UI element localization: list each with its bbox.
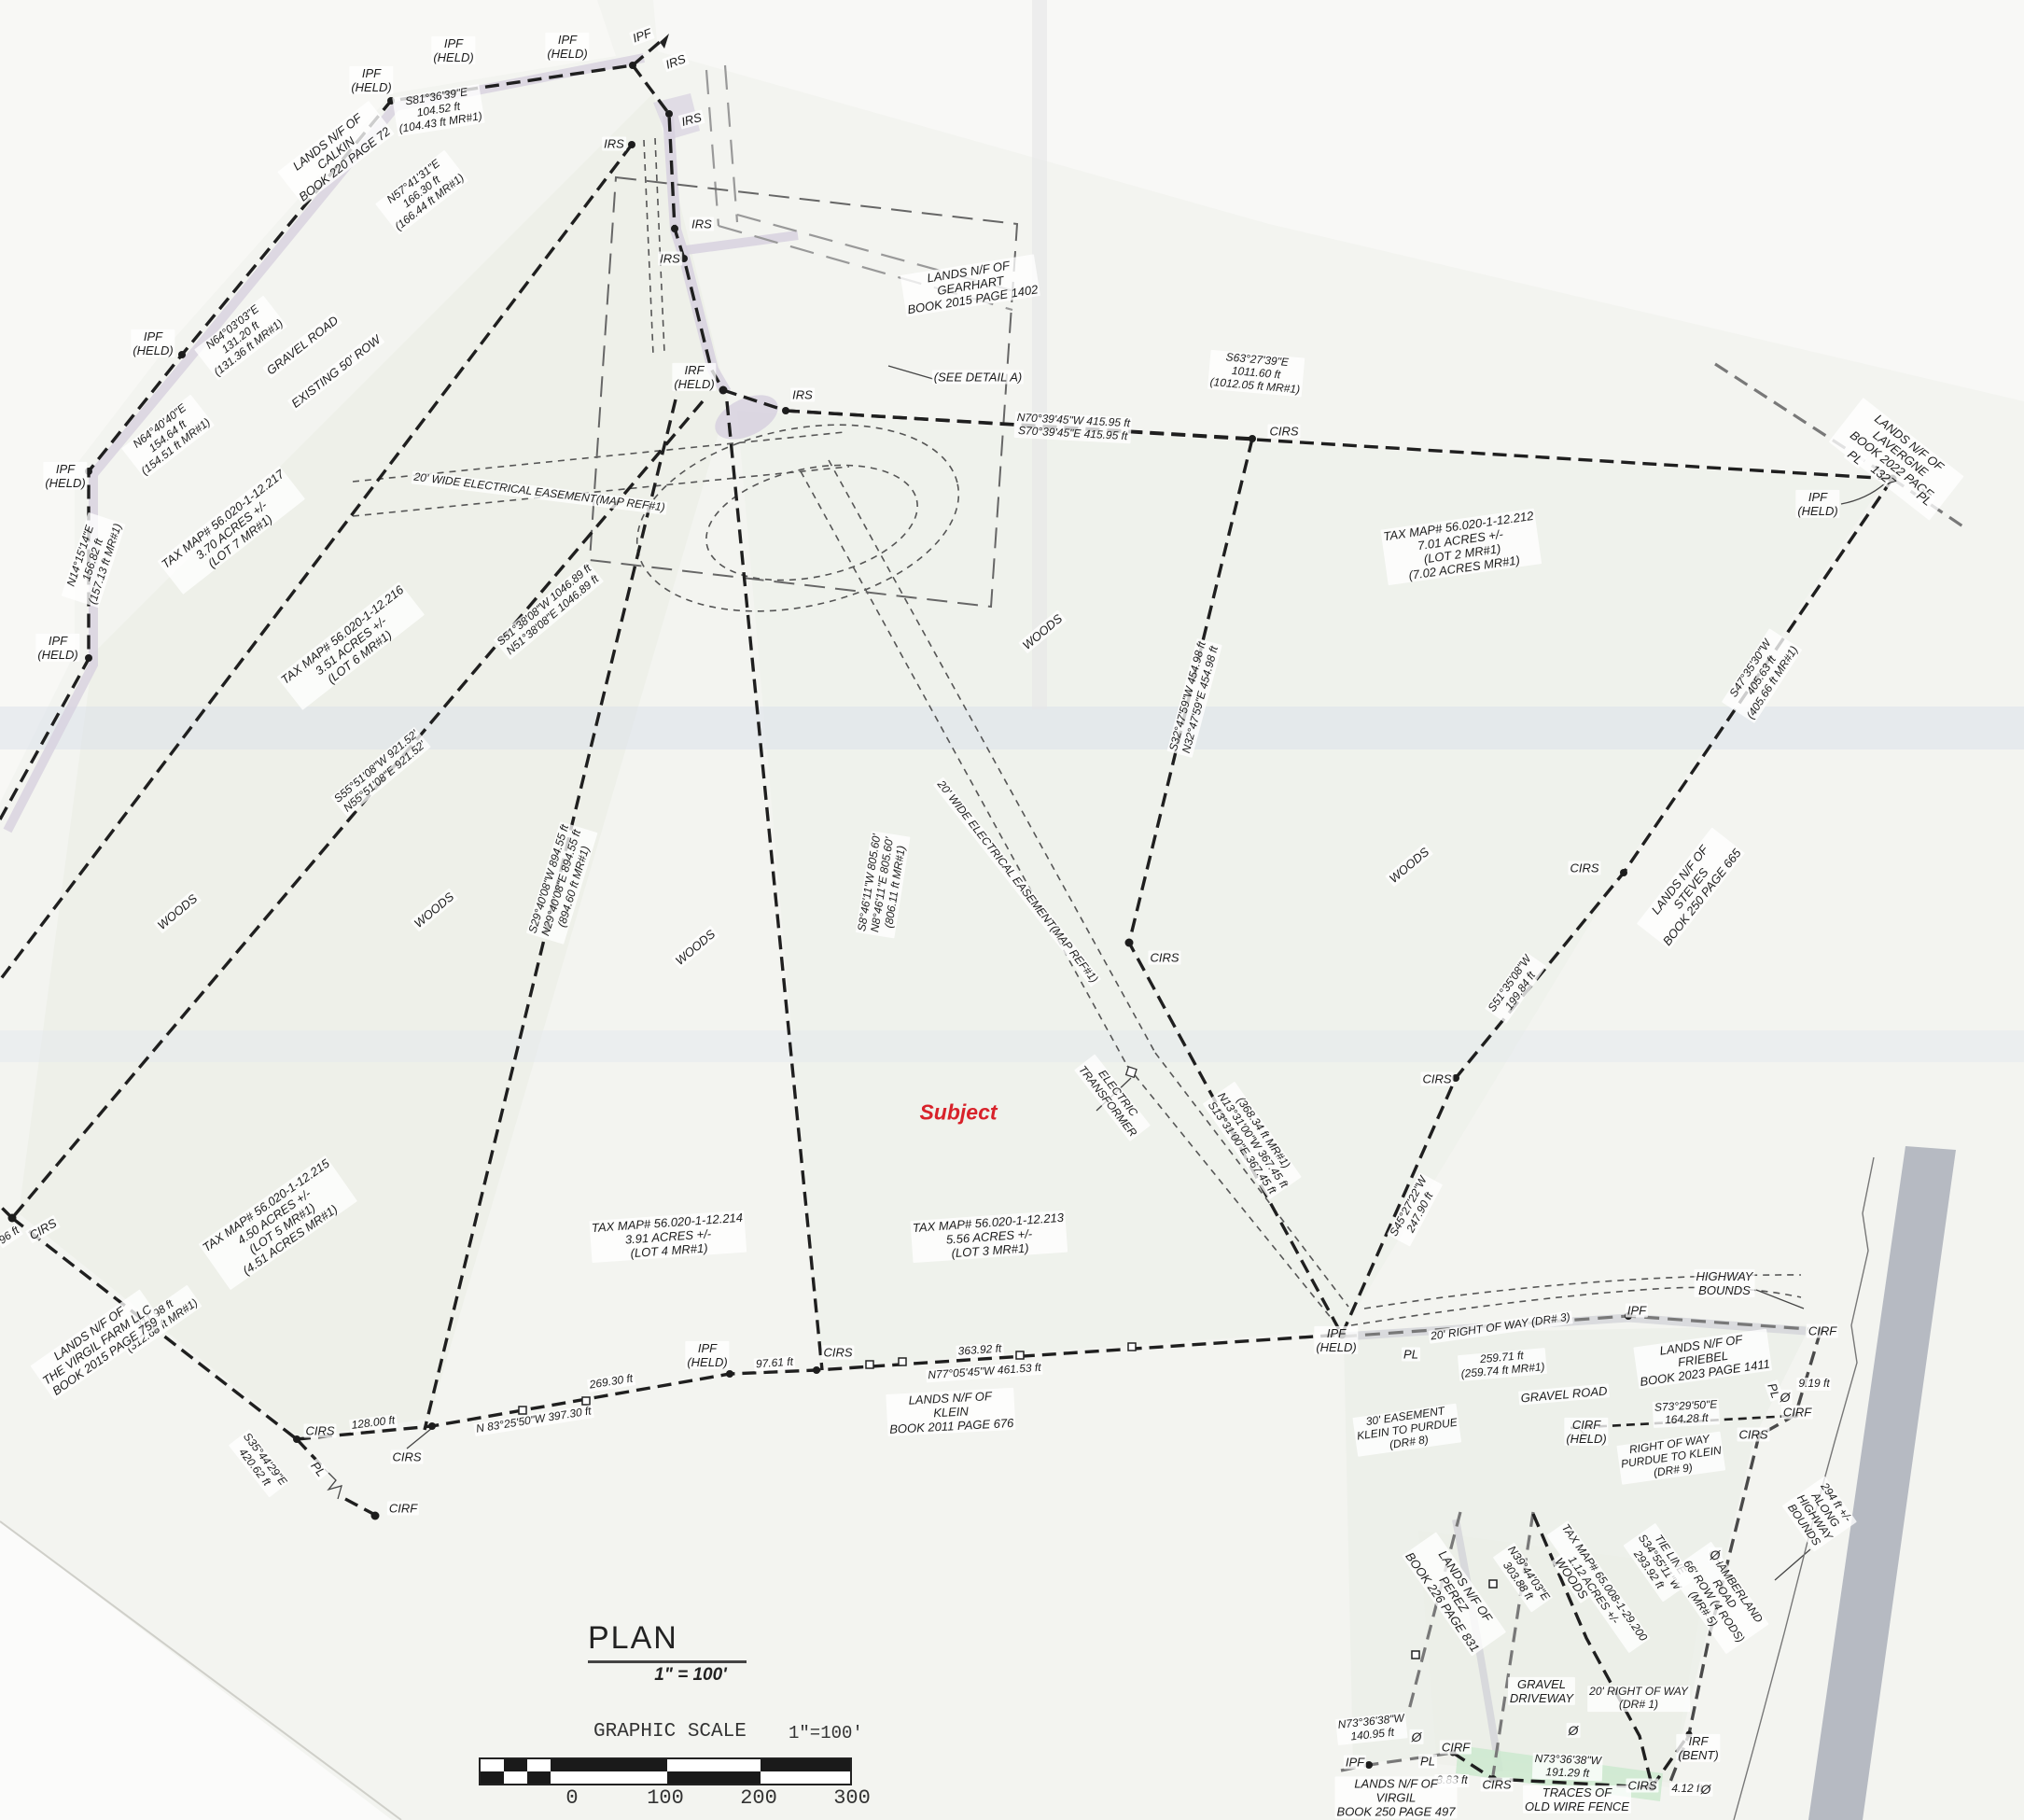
label-294-highway: 294 ft +/- ALONG HIGHWAY BOUNDS (1782, 1476, 1857, 1551)
pole-icon-2: Ø (1567, 1723, 1581, 1738)
label-ipf-held-a: IPF (HELD) (431, 36, 475, 64)
label-lands-calkin: LANDS N/F OF CALKIN BOOK 220 PAGE 72 (277, 101, 394, 205)
annotation-layer: IPF (HELD)IPFIRSIRSIRSIRSIRSIRF (HELD)IR… (0, 0, 2024, 1820)
label-pl-6: PL (1418, 1754, 1437, 1768)
label-bearing-s32: S32°47'59"W 454.98 ft N32°47'59"E 454.98… (1166, 638, 1221, 758)
label-ipf-top: IPF (629, 25, 655, 46)
pole-icon-3: Ø (1709, 1547, 1723, 1562)
label-taxmap-lot5: TAX MAP# 56.020-1-12.215 4.50 ACRES +/- … (199, 1155, 358, 1291)
label-ipf-held-top-center: IPF (HELD) (545, 33, 589, 61)
label-lands-friebel: LANDS N/F OF FRIEBEL BOOK 2023 PAGE 1411 (1633, 1329, 1772, 1390)
label-irs-6: IRS (790, 387, 815, 401)
label-woods-4: WOODS (410, 889, 457, 932)
label-bearing-s8: S8°46'11"W 805.60' N8°46'11"E 805.60' (8… (856, 832, 910, 939)
label-cirs-mid: CIRS (1148, 950, 1180, 964)
label-taxmap-lot6: TAX MAP# 56.020-1-12.216 3.51 ACRES +/- … (277, 581, 426, 710)
label-bearing-s29: S29°40'08"W 894.55 ft N29°40'08"E 894.55… (526, 821, 597, 945)
label-bearing-s55: S55°51'08"W 921.52' N55°51'08"E 921.52' (330, 727, 431, 818)
label-taxmap-lot3: TAX MAP# 56.020-1-12.213 5.56 ACRES +/- … (910, 1211, 1068, 1264)
label-bearing-s73: S73°29'50"E 164.28 ft (1653, 1398, 1721, 1428)
label-dim-919: 9.19 ft (1796, 1378, 1831, 1391)
label-taxmap-lot2: TAX MAP# 56.020-1-12.212 7.01 ACRES +/- … (1380, 509, 1542, 586)
scale-tick-300: 300 (824, 1786, 880, 1810)
label-see-detail-a: (SEE DETAIL A) (932, 370, 1024, 384)
label-subject: Subject (919, 1100, 997, 1126)
graphic-scale-bar (479, 1757, 852, 1785)
label-bearing-n39: N39°44'03"E 303.88 ft (1493, 1543, 1553, 1613)
label-cirf-held: CIRF (HELD) (1564, 1418, 1608, 1446)
label-irs-4: IRS (690, 217, 714, 231)
label-bearing-n77: N77°05'45"W 461.53 ft (926, 1362, 1043, 1383)
plan-title: PLAN (588, 1620, 747, 1663)
graphic-scale-ratio: 1"=100' (789, 1723, 863, 1743)
label-irs-1: IRS (662, 51, 689, 73)
label-gravel-driveway: GRAVEL DRIVEWAY (1508, 1677, 1575, 1705)
label-cirs-left: CIRS (25, 1215, 61, 1244)
label-cirf-2: CIRF (1781, 1405, 1813, 1419)
pole-icon-1: Ø (1410, 1729, 1424, 1744)
label-cirs-bottom: CIRS (821, 1345, 854, 1359)
scale-tick-0: 0 (544, 1786, 600, 1810)
label-bearing-s47: S47°35'30"W 405.63 ft (405.66 ft MR#1) (1722, 628, 1802, 723)
label-easement-top: 20' WIDE ELECTRICAL EASEMENT(MAP REF#1) (412, 470, 668, 514)
label-woods-3: WOODS (153, 890, 201, 934)
pole-icon-5: Ø (1779, 1390, 1793, 1405)
label-ipf-bottom: IPF (1344, 1755, 1366, 1769)
label-bearing-s45: S45°27'22"W 247.90 ft (1387, 1172, 1443, 1246)
label-ipf-held-b: IPF (HELD) (349, 66, 393, 94)
label-dim-12800: 128.00 ft (349, 1414, 398, 1433)
label-highway-bounds: HIGHWAY BOUNDS (1695, 1269, 1755, 1297)
label-ipf-held-c: IPF (HELD) (131, 329, 174, 357)
label-bearing-n64-40: N64°40'40"E 154.64 ft (154.51 ft MR#1) (121, 395, 215, 480)
label-row-dr1: 20' RIGHT OF WAY (DR# 1) (1587, 1686, 1690, 1712)
label-gravel-road-bottom: GRAVEL ROAD (1518, 1383, 1610, 1405)
label-row-dr3: 20' RIGHT OF WAY (DR# 3) (1428, 1310, 1572, 1343)
label-ipf-held-e: IPF (HELD) (35, 634, 79, 662)
label-irs-5: IRS (658, 251, 682, 265)
label-cirs-sw1: CIRS (303, 1423, 336, 1437)
label-cirs-n70: CIRS (1267, 424, 1300, 438)
label-bearing-s81: S81°36'39"E 104.52 ft (104.43 ft MR#1) (392, 84, 484, 136)
label-dim-25971: 259.71 ft (259.74 ft MR#1) (1458, 1348, 1547, 1381)
label-row-dr9: RIGHT OF WAY PURDUE TO KLEIN (DR# 9) (1616, 1432, 1725, 1485)
label-lands-perez: LANDS N/F OF PEREZ BOOK 226 PAGE 831 (1402, 1532, 1506, 1656)
label-bearing-n83: N 83°25'50"W 397.30 ft (473, 1405, 593, 1436)
label-irs-2: IRS (678, 109, 705, 129)
label-dim-9761: 97.61 ft (754, 1356, 796, 1372)
label-bearing-n13: (368.34 ft MR#1) N13°31'00"W 367.45 ft S… (1203, 1082, 1302, 1200)
pole-icon-4: Ø (1699, 1782, 1713, 1797)
label-lands-steves: LANDS N/F OF STEVES BOOK 250 PAGE 665 (1637, 827, 1745, 949)
label-cirs-b1: CIRS (1480, 1777, 1513, 1791)
label-woods-2: WOODS (1385, 844, 1432, 888)
label-lands-virgil: LANDS N/F OF VIRGIL BOOK 250 PAGE 497 (1335, 1776, 1458, 1818)
label-dim-96: 96 ft (0, 1223, 23, 1248)
label-cirs-b2: CIRS (1626, 1778, 1658, 1792)
label-lands-gearhart: LANDS N/F OF GEARHART BOOK 2015 PAGE 140… (900, 254, 1041, 316)
scale-tick-200: 200 (731, 1786, 787, 1810)
label-woods-1: WOODS (1018, 610, 1066, 654)
label-cirf-1: CIRF (1807, 1323, 1838, 1337)
label-lands-klein: LANDS N/F OF KLEIN BOOK 2011 PAGE 676 (886, 1388, 1015, 1436)
label-cirs-sw2: CIRS (390, 1449, 423, 1463)
label-woods-5: WOODS (671, 926, 719, 970)
label-cirs-right-2: CIRS (1420, 1071, 1453, 1085)
label-ipf-row: IPF (1626, 1303, 1648, 1317)
survey-plat-page: IPF (HELD)IPFIRSIRSIRSIRSIRSIRF (HELD)IR… (0, 0, 2024, 1820)
label-irs-3: IRS (602, 136, 626, 150)
label-bearing-n57: N57°41'31"E 166.30 ft (166.44 ft MR#1) (375, 150, 468, 235)
label-irf-held: IRF (HELD) (672, 363, 716, 391)
label-bearing-s51-35: S51°35'08"W 199.84 ft (1485, 951, 1546, 1023)
label-pl-3: PL (307, 1458, 329, 1481)
scale-tick-100: 100 (637, 1786, 693, 1810)
label-taxmap-lot7: TAX MAP# 56.020-1-12.217 3.70 ACRES +/- … (158, 466, 306, 595)
label-cirf-3: CIRF (1440, 1740, 1472, 1754)
label-electric-transformer: ELECTRIC TRANSFORMER (1074, 1054, 1150, 1141)
label-ipf-held-d: IPF (HELD) (43, 462, 87, 490)
label-taxmap-lot4: TAX MAP# 56.020-1-12.214 3.91 ACRES +/- … (589, 1211, 747, 1264)
label-bearing-n73-140: N73°36'38"W 140.95 ft (1335, 1712, 1408, 1745)
label-easement-diag: 20' WIDE ELECTRICAL EASEMENT(MAP REF#1) (933, 777, 1101, 987)
label-bearing-s51-38: S51°38'08"W 1046.89 ft N51°38'08"E 1046.… (494, 561, 605, 660)
label-bearing-s63: S63°27'39"E 1011.60 ft (1012.05 ft MR#1) (1207, 350, 1305, 397)
label-easement-dr8: 30' EASEMENT KLEIN TO PURDUE (DR# 8) (1352, 1404, 1461, 1457)
label-ipf-held-bottom: IPF (HELD) (685, 1341, 729, 1369)
label-bearing-n73-191: N73°36'38"W 191.29 ft (1532, 1753, 1603, 1781)
label-ipf-held-east: IPF (HELD) (1314, 1326, 1358, 1354)
plan-scale-note: 1" = 100' (616, 1665, 765, 1686)
graphic-scale-label: GRAPHIC SCALE (593, 1721, 747, 1743)
label-bearing-n70: N70°39'45"W 415.95 ft S70°39'45"E 415.95… (1014, 412, 1133, 443)
label-irf-bent: IRF (BENT) (1676, 1734, 1720, 1762)
label-pl-4: PL (1402, 1347, 1420, 1361)
label-dim-26930: 269.30 ft (587, 1372, 635, 1393)
label-bearing-s35: S35°44'29"E 420.62 ft (229, 1429, 290, 1497)
label-cirf-sw: CIRF (387, 1501, 419, 1515)
label-dim-36392: 363.92 ft (956, 1342, 1004, 1358)
label-cirs-right-1: CIRS (1568, 861, 1600, 875)
label-bearing-n14: N14°15'14"E 156.82 ft (157.13 ft MR#1) (62, 512, 126, 608)
label-traces-fence: TRACES OF OLD WIRE FENCE (1523, 1785, 1631, 1813)
label-ipf-held-right: IPF (HELD) (1795, 490, 1839, 518)
label-cirs-hwy: CIRS (1737, 1427, 1769, 1441)
